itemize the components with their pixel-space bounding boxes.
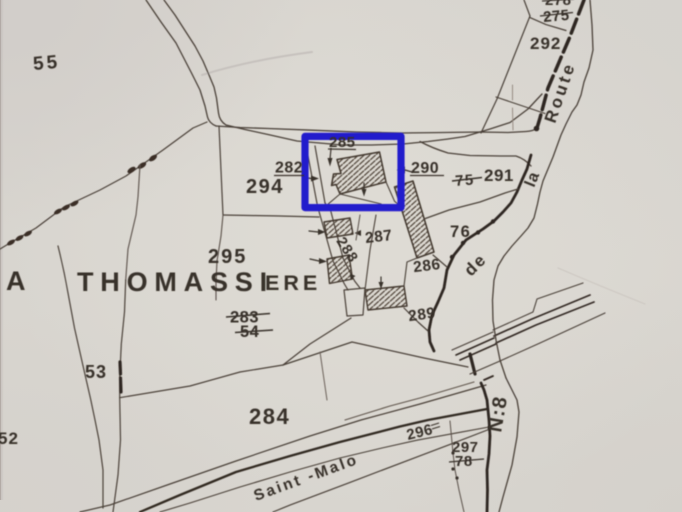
svg-text:287: 287: [364, 227, 393, 247]
svg-text:THOMASSI: THOMASSI: [77, 267, 274, 297]
svg-text:295: 295: [208, 246, 247, 268]
svg-text:A: A: [6, 266, 34, 296]
svg-text:294: 294: [246, 176, 284, 198]
svg-text:ERE: ERE: [265, 271, 321, 295]
svg-text:52: 52: [0, 429, 19, 448]
svg-text:53: 53: [85, 362, 107, 382]
svg-text:291: 291: [484, 166, 514, 185]
svg-text:282: 282: [275, 160, 303, 177]
svg-text:278: 278: [545, 0, 572, 9]
svg-text:286: 286: [412, 256, 441, 276]
svg-text:76: 76: [450, 223, 471, 241]
svg-text:55: 55: [32, 52, 61, 75]
svg-text:292: 292: [530, 34, 561, 53]
svg-text:284: 284: [249, 404, 290, 429]
svg-text:290: 290: [411, 160, 439, 177]
svg-text:275: 275: [542, 7, 570, 26]
